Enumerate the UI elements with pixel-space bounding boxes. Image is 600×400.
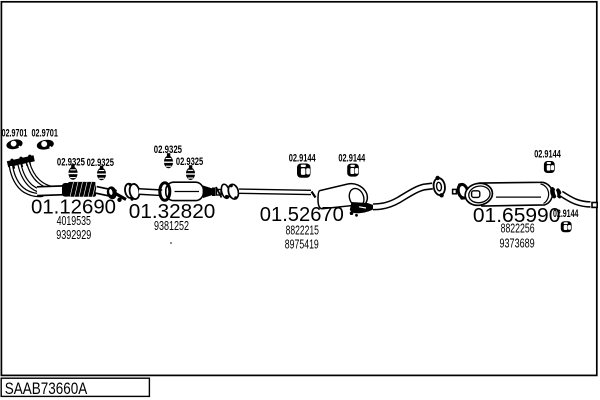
svg-text:SAAB73660A: SAAB73660A	[5, 379, 88, 398]
svg-text:9373689: 9373689	[500, 236, 535, 251]
svg-text:9381252: 9381252	[154, 218, 189, 233]
svg-text:02.9701: 02.9701	[32, 127, 58, 139]
svg-text:9392929: 9392929	[56, 227, 91, 242]
svg-text:4019535: 4019535	[57, 213, 91, 228]
svg-text:02.9144: 02.9144	[338, 152, 365, 164]
svg-text:8822215: 8822215	[286, 223, 319, 238]
svg-text:02.9325: 02.9325	[57, 156, 85, 168]
svg-text:02.9144: 02.9144	[289, 152, 317, 164]
svg-text:8975419: 8975419	[285, 236, 319, 251]
svg-text:02.9144: 02.9144	[534, 148, 561, 160]
svg-text:02.9701: 02.9701	[2, 127, 28, 139]
svg-text:8822256: 8822256	[501, 220, 535, 235]
